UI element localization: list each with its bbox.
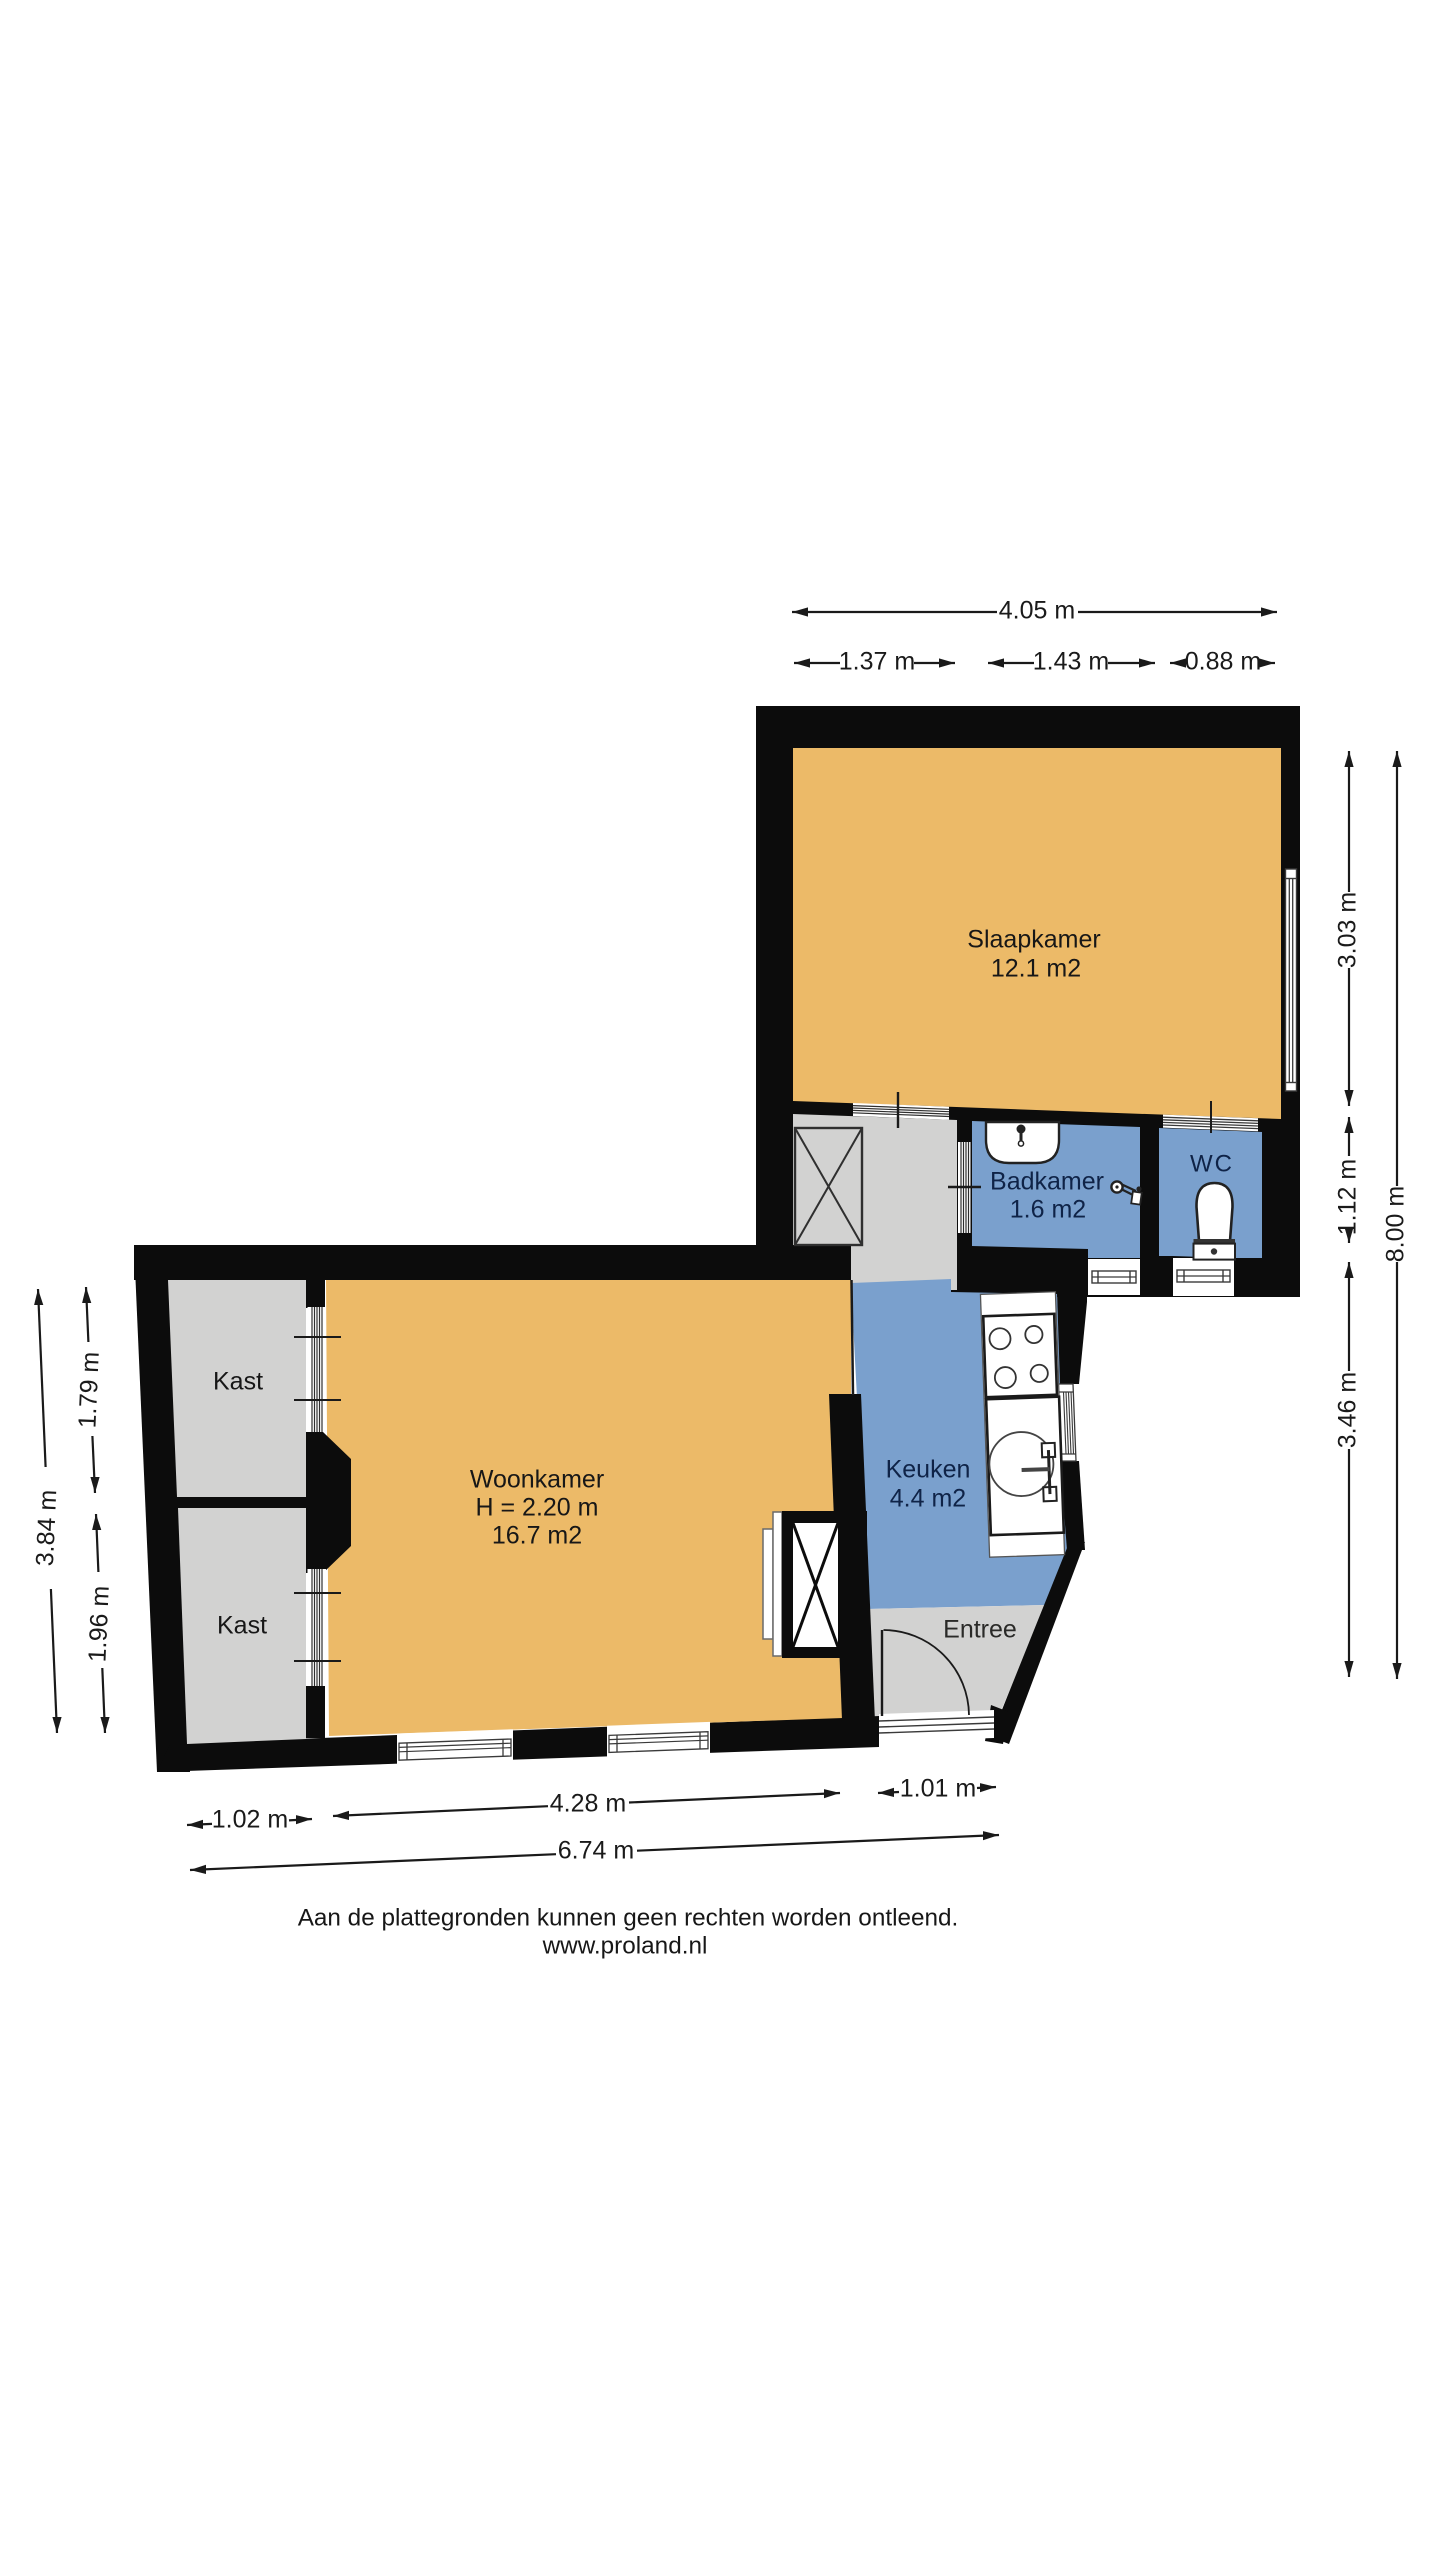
svg-text:WC: WC — [1190, 1150, 1234, 1177]
svg-text:H = 2.20 m: H = 2.20 m — [476, 1494, 599, 1522]
svg-text:4.4 m2: 4.4 m2 — [890, 1485, 966, 1513]
svg-text:4.28 m: 4.28 m — [550, 1790, 626, 1818]
svg-text:1.02 m: 1.02 m — [212, 1806, 288, 1834]
svg-text:1.43 m: 1.43 m — [1033, 648, 1109, 676]
svg-text:6.74 m: 6.74 m — [558, 1837, 634, 1865]
svg-text:1.01 m: 1.01 m — [900, 1775, 976, 1803]
svg-text:Keuken: Keuken — [886, 1456, 971, 1484]
svg-text:Kast: Kast — [217, 1612, 267, 1640]
svg-text:3.03 m: 3.03 m — [1334, 892, 1362, 968]
svg-text:1.79 m: 1.79 m — [73, 1351, 104, 1429]
svg-text:Badkamer: Badkamer — [990, 1168, 1104, 1196]
svg-text:4.05 m: 4.05 m — [999, 597, 1075, 625]
svg-text:Aan de plattegronden kunnen ge: Aan de plattegronden kunnen geen rechten… — [298, 1904, 959, 1931]
svg-text:1.96 m: 1.96 m — [83, 1585, 114, 1663]
svg-text:Entree: Entree — [943, 1616, 1017, 1644]
svg-text:Slaapkamer: Slaapkamer — [967, 926, 1100, 954]
svg-text:1.6 m2: 1.6 m2 — [1010, 1196, 1086, 1224]
svg-text:3.84 m: 3.84 m — [31, 1489, 62, 1567]
svg-text:Kast: Kast — [213, 1368, 263, 1396]
svg-text:1.12 m: 1.12 m — [1334, 1159, 1362, 1235]
svg-text:0.88 m: 0.88 m — [1185, 648, 1261, 676]
svg-text:16.7 m2: 16.7 m2 — [492, 1522, 582, 1550]
svg-text:www.proland.nl: www.proland.nl — [542, 1932, 708, 1959]
svg-text:8.00 m: 8.00 m — [1382, 1186, 1410, 1262]
svg-text:1.37 m: 1.37 m — [839, 648, 915, 676]
svg-text:3.46 m: 3.46 m — [1334, 1372, 1362, 1448]
svg-text:Woonkamer: Woonkamer — [470, 1466, 604, 1494]
svg-text:12.1 m2: 12.1 m2 — [991, 955, 1081, 983]
